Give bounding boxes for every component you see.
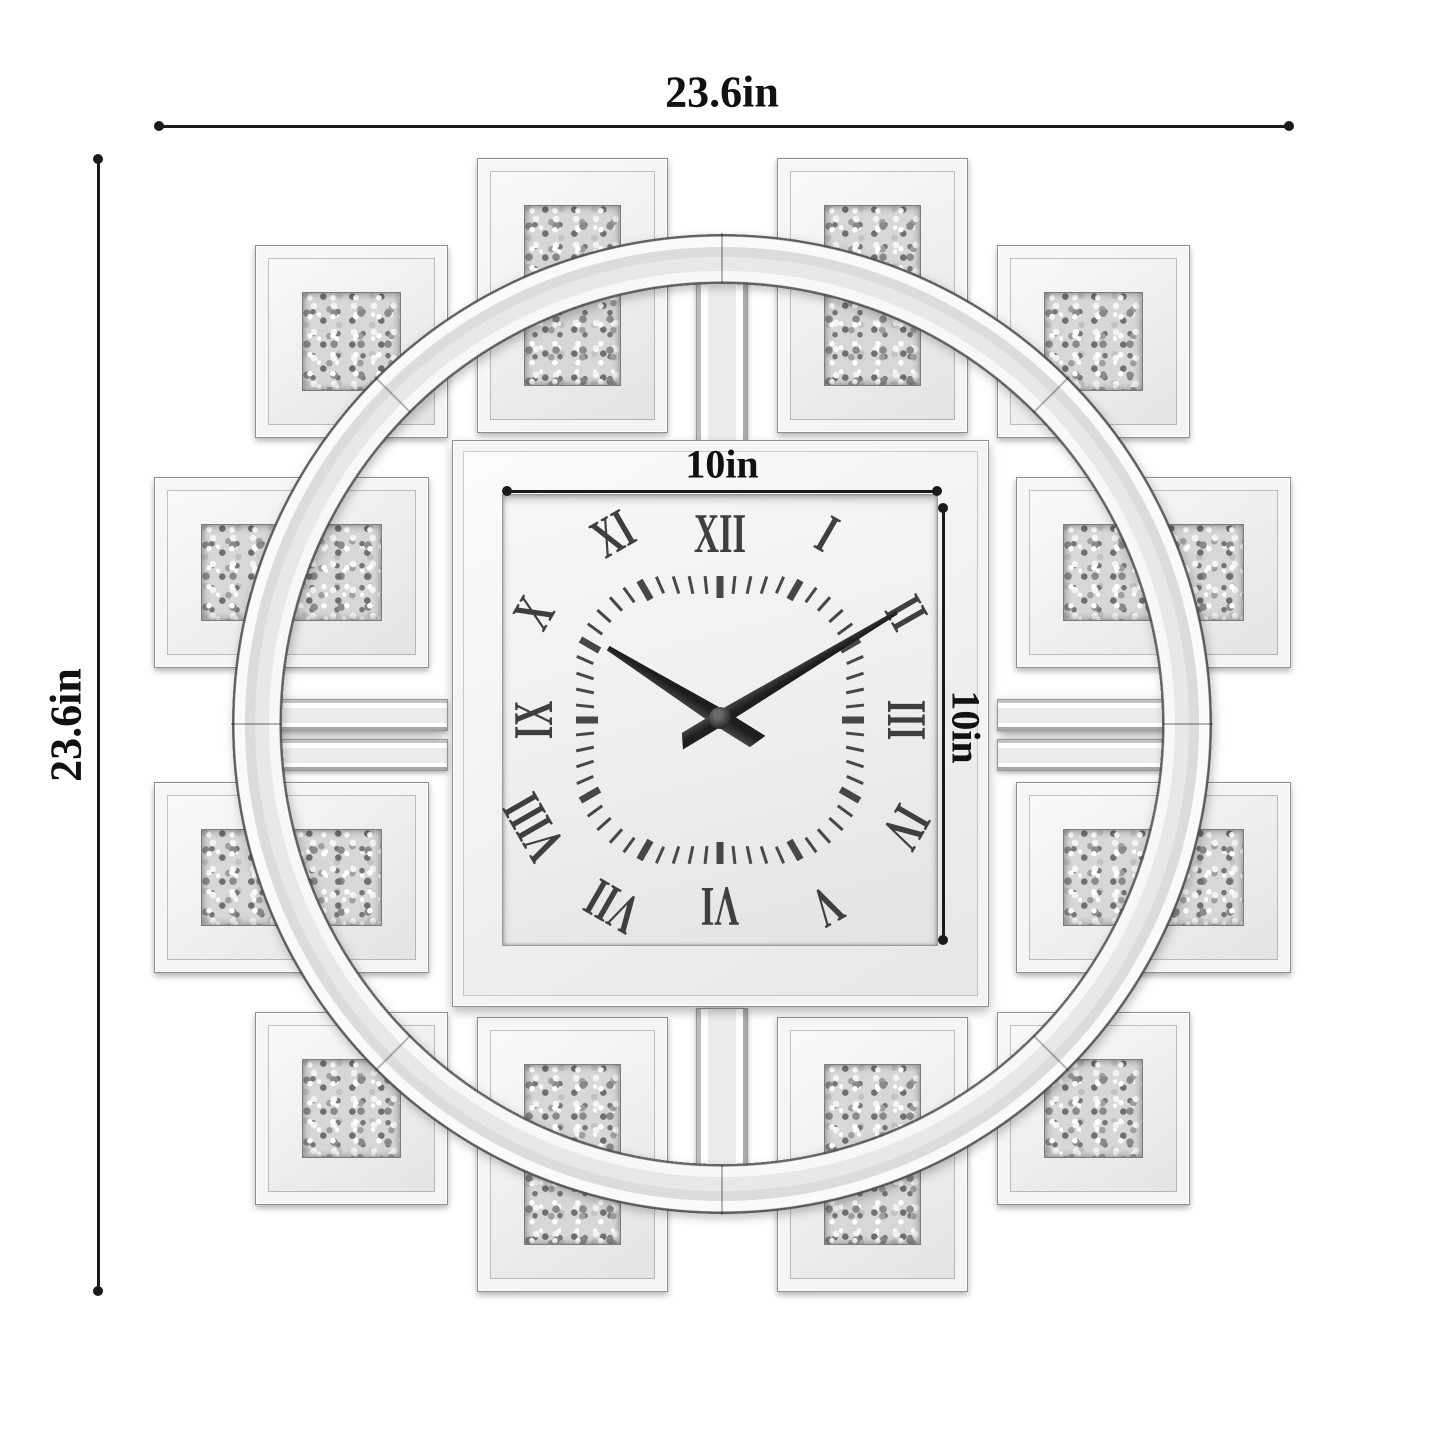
overall-width-label: 23.6in [665,67,779,118]
dial-height-label: 10in [943,690,990,763]
dial-width-label: 10in [685,441,758,488]
overall-width-dimension-line [158,125,1290,128]
dial-width-dimension-line [506,490,938,493]
roman-numeral-IX: IX [506,701,562,740]
product-dimension-image: 23.6in 23.6in [0,0,1445,1445]
roman-numeral-III: III [878,700,934,741]
roman-numeral-XII: XII [694,506,746,562]
center-cap [709,707,731,729]
overall-height-label: 23.6in [41,668,92,782]
overall-height-dimension-line [97,158,100,1292]
roman-numeral-VI: VI [701,878,740,934]
